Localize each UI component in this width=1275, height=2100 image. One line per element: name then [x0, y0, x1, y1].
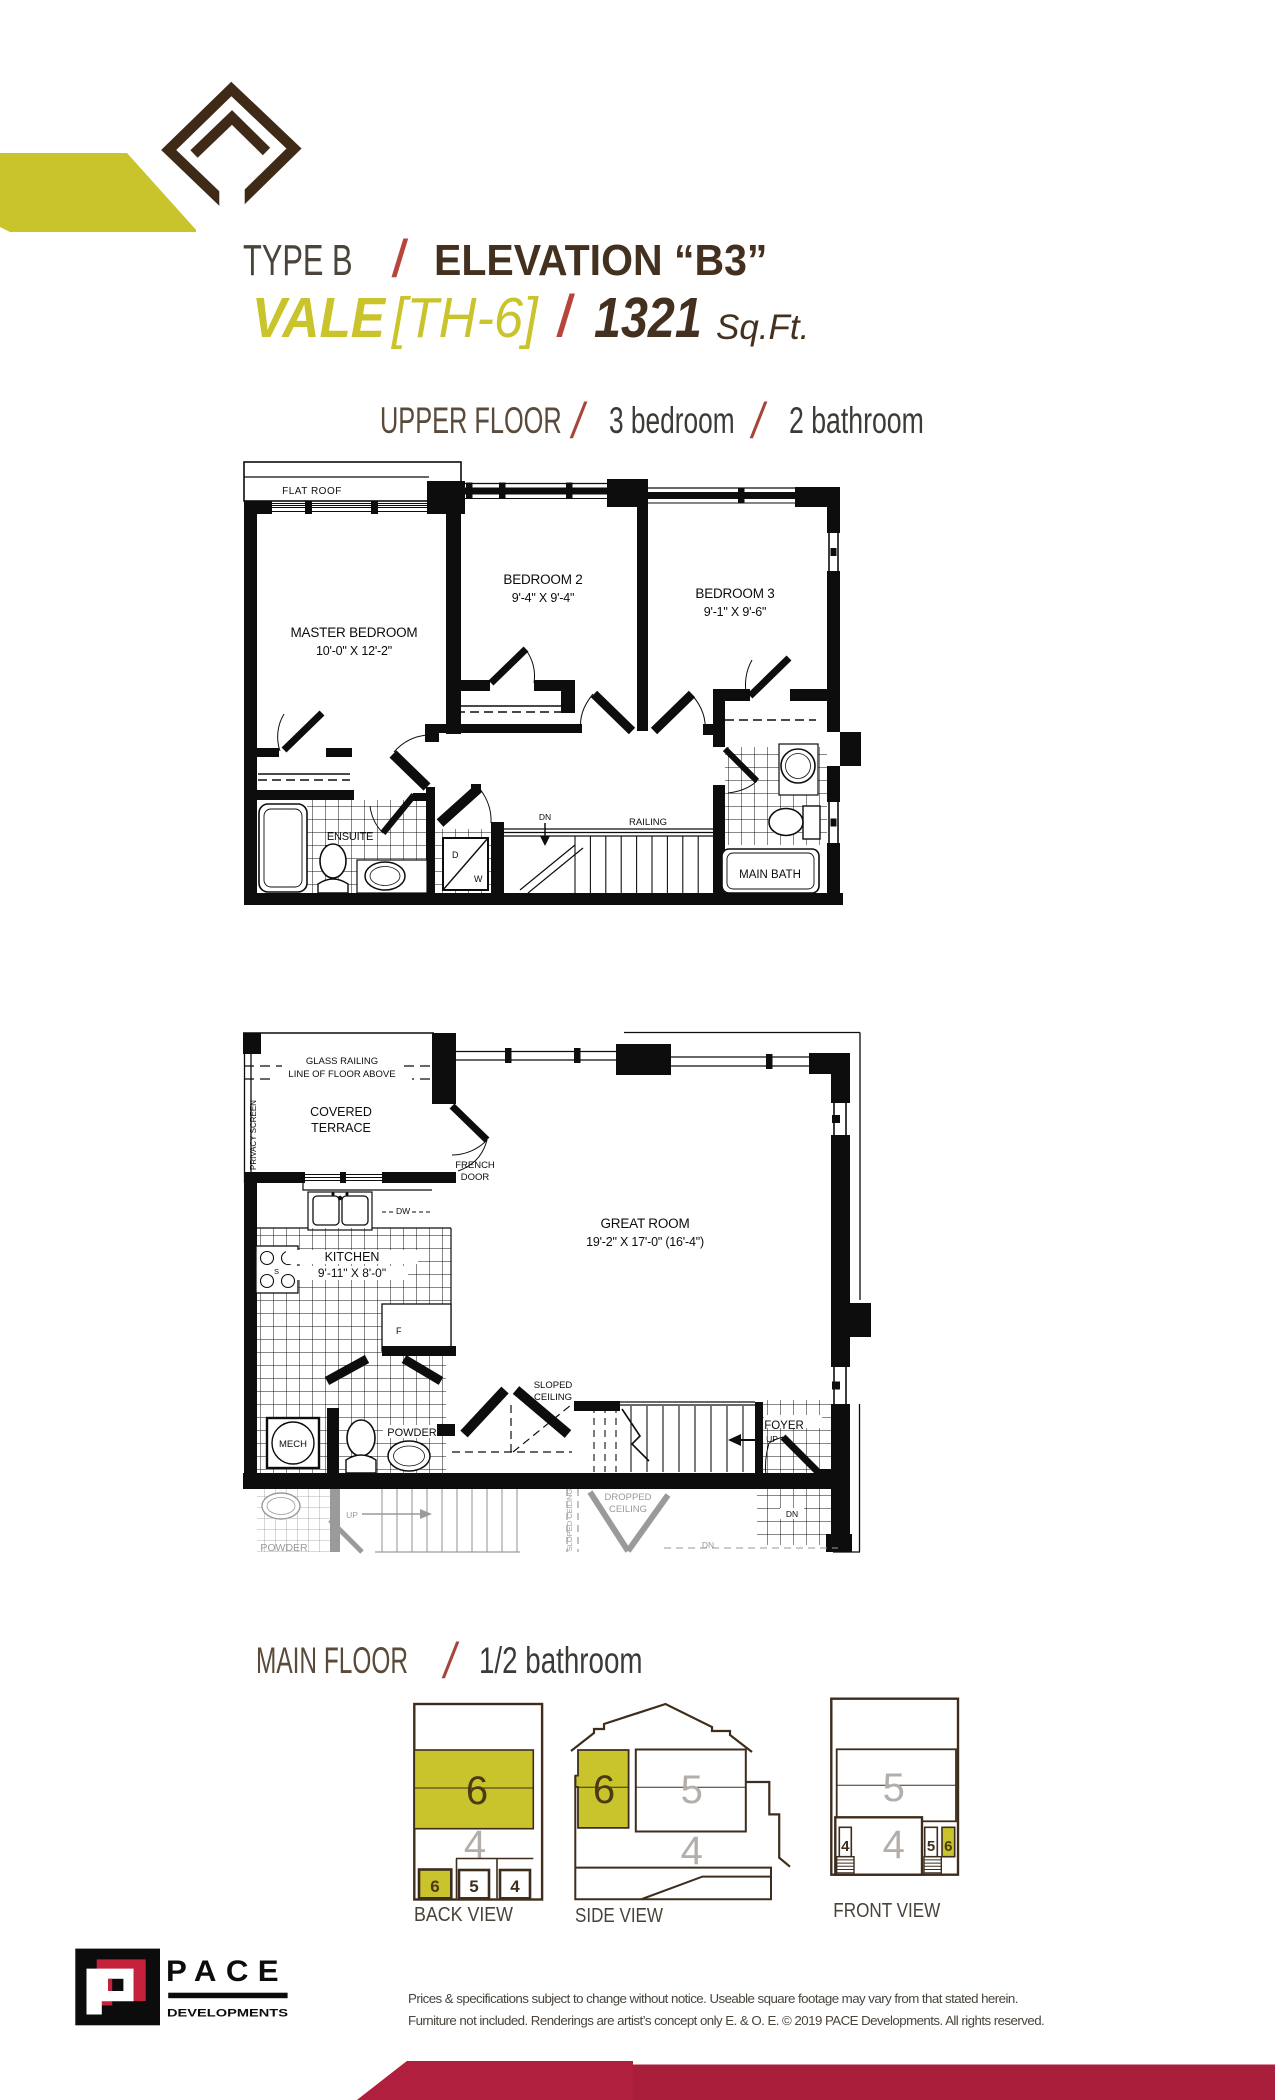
svg-text:DEVELOPMENTS: DEVELOPMENTS: [167, 2008, 288, 2020]
svg-text:PACE: PACE: [166, 1955, 288, 1988]
